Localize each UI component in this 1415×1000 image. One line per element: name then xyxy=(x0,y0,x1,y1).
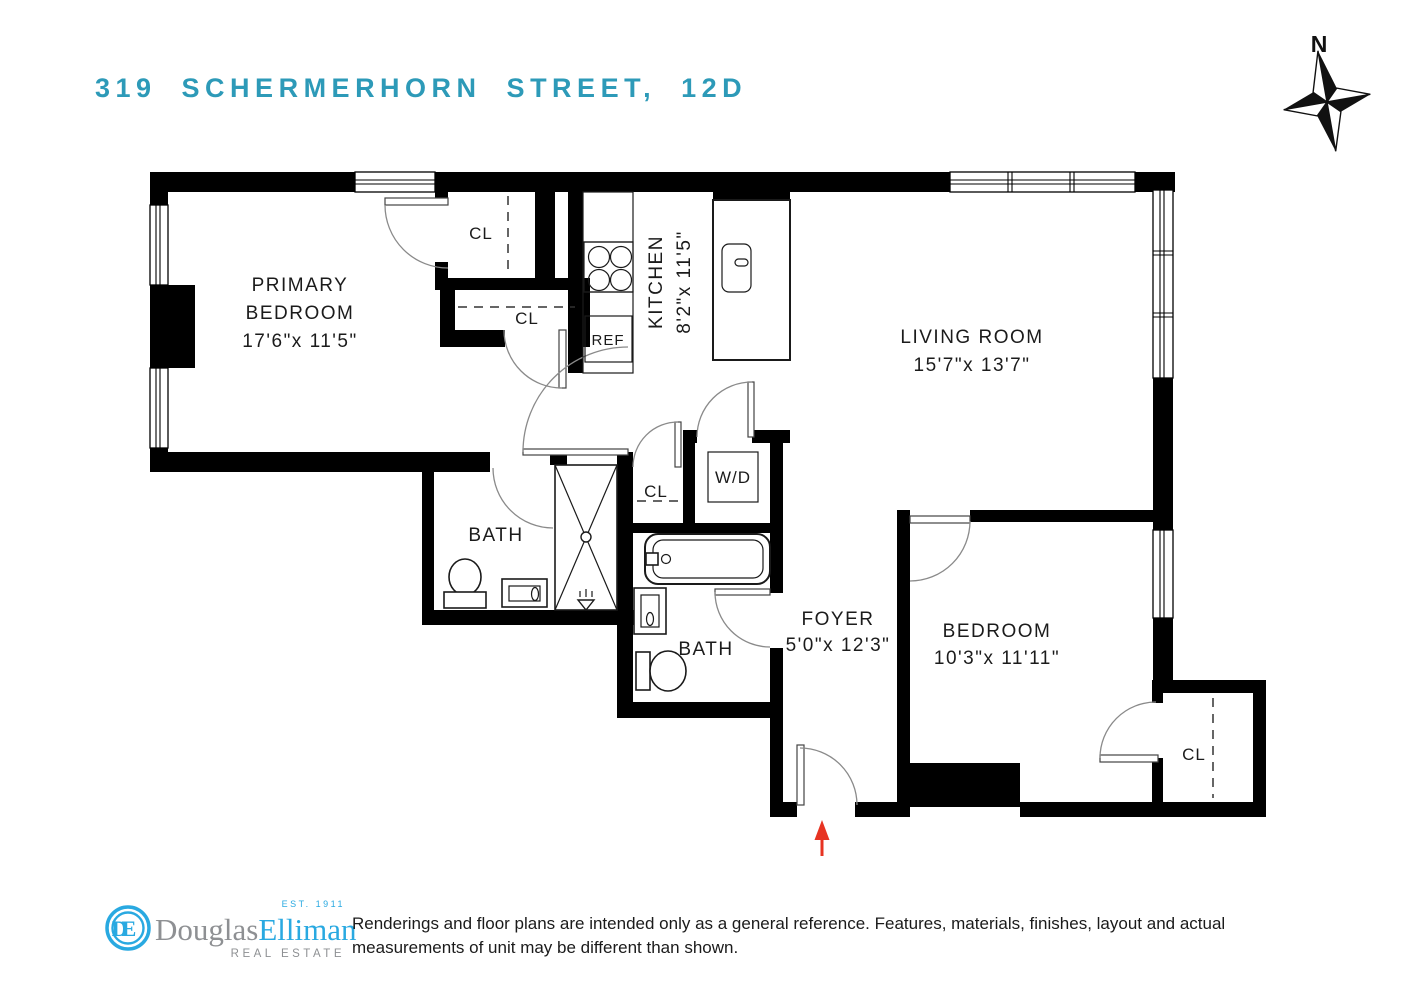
toilet-icon xyxy=(444,559,486,608)
primary-bath-door xyxy=(493,468,553,528)
svg-text:DouglasElliman: DouglasElliman xyxy=(155,912,357,947)
closet3-label: CL xyxy=(644,482,668,501)
brand-name-first: Douglas xyxy=(155,912,258,947)
entry-door xyxy=(797,745,804,805)
svg-text:PRIMARY: PRIMARY xyxy=(252,275,349,296)
washer-dryer-door xyxy=(748,382,754,437)
svg-text:LIVING ROOM: LIVING ROOM xyxy=(900,327,1043,348)
svg-text:15'7"x 13'7": 15'7"x 13'7" xyxy=(914,355,1031,376)
compass-icon: N xyxy=(1275,31,1379,159)
room-label-second-bath: BATH xyxy=(678,639,733,660)
page-title: 319 SCHERMERHORN STREET, 12D xyxy=(95,73,747,103)
svg-text:17'6"x 11'5": 17'6"x 11'5" xyxy=(242,331,358,352)
closet4-label: CL xyxy=(1182,745,1206,764)
primary-bedroom-door xyxy=(559,330,566,388)
closet1-label: CL xyxy=(469,224,493,243)
brand-established: EST. 1911 xyxy=(282,899,345,909)
hallway-door xyxy=(523,449,628,455)
disclaimer-line2: measurements of unit may be different th… xyxy=(352,938,738,957)
kitchen-island xyxy=(713,200,790,360)
shower-icon xyxy=(555,465,617,610)
floor-plan-canvas: 319 SCHERMERHORN STREET, 12D N xyxy=(0,0,1415,1000)
svg-text:BEDROOM: BEDROOM xyxy=(943,621,1052,642)
svg-text:DE: DE xyxy=(112,916,137,941)
second-bath-fixtures xyxy=(634,534,770,691)
washer-dryer-label: W/D xyxy=(715,468,751,487)
hall-closet-door xyxy=(675,422,681,467)
refrigerator: REF xyxy=(585,316,632,362)
second-bath-door xyxy=(715,589,770,595)
closet2-label: CL xyxy=(515,309,539,328)
svg-text:5'0"x 12'3": 5'0"x 12'3" xyxy=(786,635,891,656)
svg-text:BEDROOM: BEDROOM xyxy=(246,303,355,324)
svg-text:8'2"x 11'5": 8'2"x 11'5" xyxy=(674,230,695,333)
svg-text:KITCHEN: KITCHEN xyxy=(646,235,667,329)
logo-monogram-e: E xyxy=(122,916,137,941)
room-label-foyer: FOYER 5'0"x 12'3" xyxy=(786,609,891,656)
bathtub-icon xyxy=(645,534,770,584)
svg-text:FOYER: FOYER xyxy=(802,609,875,630)
bedroom-closet-door xyxy=(1100,755,1158,762)
brand-name-second: Elliman xyxy=(258,912,357,947)
closet1-door xyxy=(385,198,448,205)
entry-arrow-icon xyxy=(815,820,830,856)
room-label-primary-bedroom: PRIMARY BEDROOM 17'6"x 11'5" xyxy=(242,275,358,352)
bedroom-door xyxy=(910,516,970,523)
brand-division: REAL ESTATE xyxy=(231,948,345,960)
stove-icon xyxy=(584,242,633,292)
brand-logo: DE DouglasElliman EST. 1911 REAL ESTATE xyxy=(107,899,357,960)
room-label-living-room: LIVING ROOM 15'7"x 13'7" xyxy=(900,327,1043,376)
svg-text:10'3"x 11'11": 10'3"x 11'11" xyxy=(934,648,1060,669)
room-label-kitchen: KITCHEN 8'2"x 11'5" xyxy=(646,230,695,333)
room-label-primary-bath: BATH xyxy=(468,525,523,546)
washer-dryer: W/D xyxy=(708,452,758,502)
sink-icon xyxy=(502,579,547,607)
refrigerator-label: REF xyxy=(592,332,625,349)
disclaimer: Renderings and floor plans are intended … xyxy=(352,914,1225,957)
disclaimer-line1: Renderings and floor plans are intended … xyxy=(352,914,1225,933)
floor-plan-page: 319 SCHERMERHORN STREET, 12D N xyxy=(0,0,1415,1000)
room-label-bedroom: BEDROOM 10'3"x 11'11" xyxy=(934,621,1060,669)
sink-icon xyxy=(634,588,666,634)
